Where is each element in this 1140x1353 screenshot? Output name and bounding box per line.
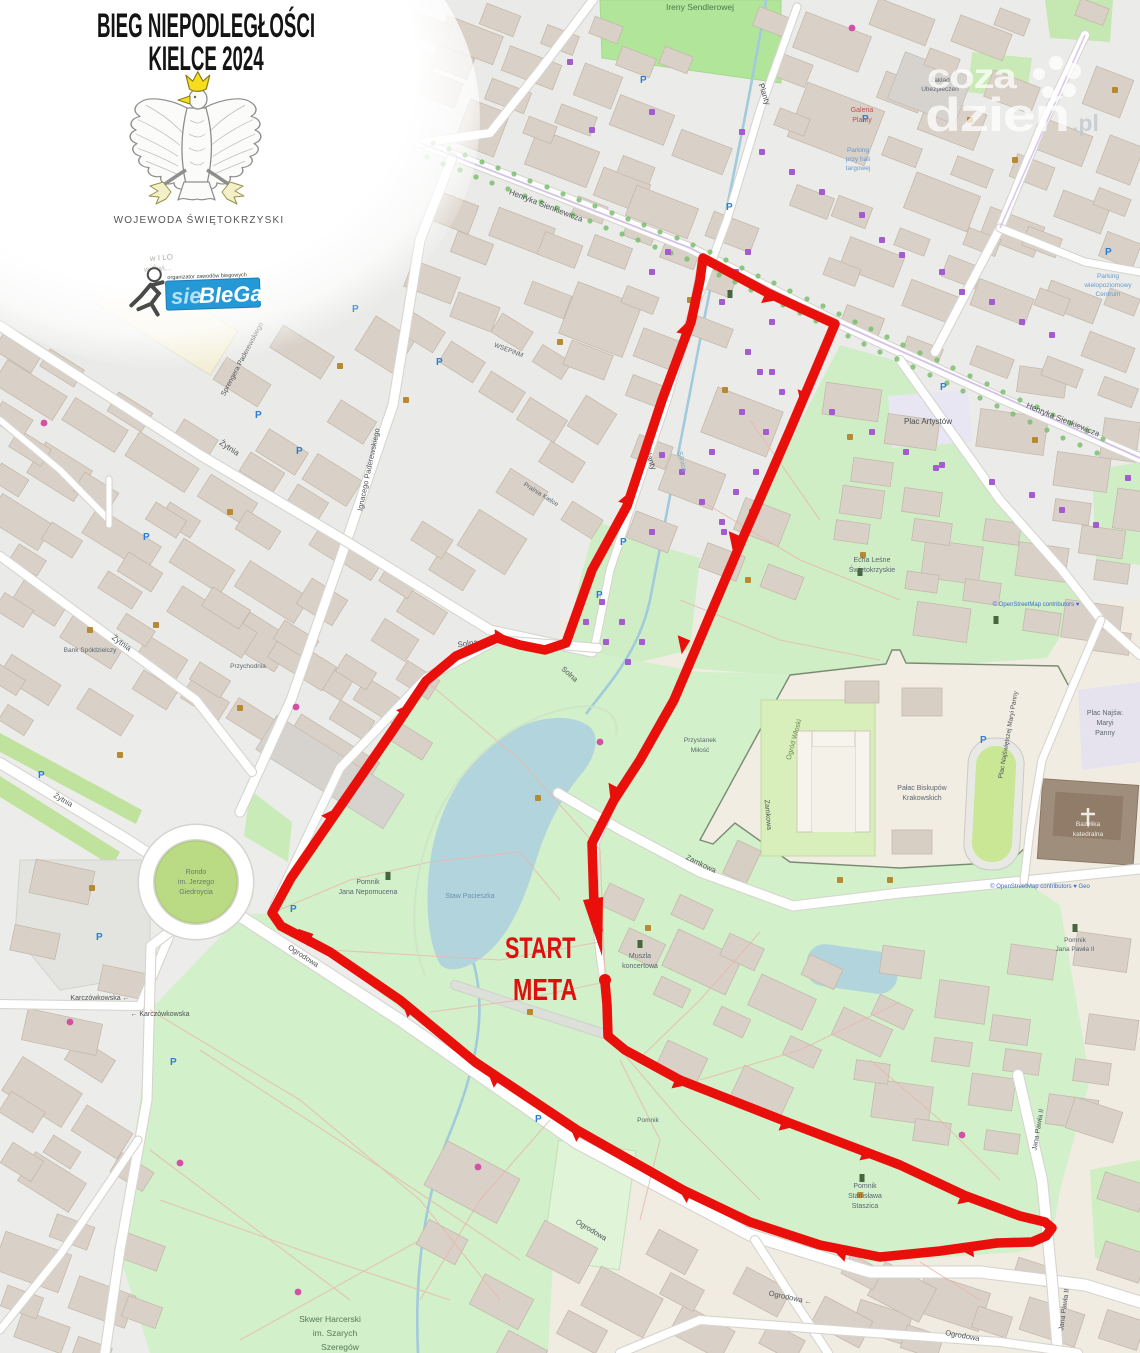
svg-text:katedralna: katedralna [1073, 831, 1104, 838]
svg-text:Pomnik: Pomnik [637, 1117, 659, 1124]
svg-text:Parking: Parking [847, 147, 869, 154]
svg-text:BIeGa: BIeGa [199, 281, 263, 308]
svg-text:im. Jerzego: im. Jerzego [178, 879, 214, 886]
svg-text:P: P [38, 770, 45, 781]
svg-text:.pl: .pl [1072, 110, 1099, 136]
svg-text:Muszla: Muszla [629, 953, 651, 960]
svg-text:Pomnik: Pomnik [356, 879, 380, 886]
svg-text:Giedroycia: Giedroycia [179, 889, 213, 896]
svg-text:Przystanek: Przystanek [684, 737, 717, 744]
svg-text:P: P [596, 590, 603, 601]
svg-text:P: P [1105, 247, 1112, 258]
svg-text:Pomnik: Pomnik [1064, 937, 1086, 944]
svg-text:P: P [980, 735, 987, 746]
svg-text:← Karczówkowska: ← Karczówkowska [130, 1011, 189, 1018]
svg-text:w I LO: w I LO [149, 252, 174, 263]
svg-text:P: P [296, 446, 303, 457]
svg-text:Bazylika: Bazylika [1076, 821, 1101, 828]
svg-text:Centrum: Centrum [1096, 291, 1121, 298]
svg-text:WOJEWODA ŚWIĘTOKRZYSKI: WOJEWODA ŚWIĘTOKRZYSKI [114, 213, 285, 226]
svg-text:Stanisława: Stanisława [848, 1193, 882, 1200]
svg-text:Plac Najśw.: Plac Najśw. [1087, 710, 1123, 717]
svg-text:P: P [143, 532, 150, 543]
svg-text:© OpenStreetMap contributors ♥: © OpenStreetMap contributors ♥ [993, 601, 1080, 608]
svg-text:START: START [505, 930, 575, 964]
svg-text:P: P [726, 202, 733, 213]
svg-text:Świętokrzyskie: Świętokrzyskie [849, 565, 895, 574]
svg-text:Rondo: Rondo [186, 869, 207, 876]
svg-text:P: P [640, 75, 647, 86]
svg-text:Echa Leśne: Echa Leśne [854, 557, 891, 564]
svg-text:Panny: Panny [1095, 730, 1115, 737]
svg-text:Przychodnia: Przychodnia [230, 663, 266, 670]
svg-text:Plac Artystów: Plac Artystów [904, 417, 952, 426]
svg-text:Pomnik: Pomnik [853, 1183, 877, 1190]
svg-text:© OpenStreetMap contributors ♥: © OpenStreetMap contributors ♥ Geo [990, 883, 1090, 890]
svg-text:P: P [255, 410, 262, 421]
svg-text:Karczówkowska ←: Karczówkowska ← [70, 995, 129, 1002]
svg-text:P: P [535, 1114, 542, 1125]
svg-text:koncertowa: koncertowa [622, 963, 658, 970]
svg-text:targowej: targowej [846, 165, 871, 172]
svg-text:Staw Pocieszka: Staw Pocieszka [445, 893, 495, 900]
svg-text:Miłość: Miłość [691, 747, 710, 754]
svg-text:META: META [513, 972, 577, 1007]
svg-text:Ireny Sendlerowej: Ireny Sendlerowej [666, 2, 734, 12]
svg-text:Staszica: Staszica [852, 1203, 879, 1210]
svg-text:Galeria: Galeria [851, 107, 874, 114]
svg-text:Planty: Planty [852, 117, 872, 124]
svg-text:Pałac Biskupów: Pałac Biskupów [897, 785, 947, 792]
svg-text:przy hali: przy hali [846, 156, 870, 163]
svg-text:Krakowskich: Krakowskich [902, 795, 941, 802]
svg-text:Skwer Harcerski: Skwer Harcerski [299, 1314, 361, 1324]
svg-text:Bank Spółdzielczy: Bank Spółdzielczy [64, 647, 117, 654]
svg-text:KIELCE 2024: KIELCE 2024 [148, 39, 264, 77]
svg-text:sie: sie [171, 283, 202, 309]
svg-text:P: P [170, 1057, 177, 1068]
svg-text:P: P [620, 537, 627, 548]
svg-text:P: P [96, 932, 103, 943]
svg-text:im. Szarych: im. Szarych [313, 1328, 358, 1338]
svg-text:wielopoziomowy: wielopoziomowy [1083, 282, 1132, 289]
svg-text:Szeregów: Szeregów [321, 1342, 360, 1352]
svg-text:Maryi: Maryi [1096, 720, 1114, 727]
svg-text:Parking: Parking [1097, 273, 1119, 280]
svg-text:Jana Pawła II: Jana Pawła II [1055, 946, 1094, 953]
svg-text:P: P [436, 357, 443, 368]
svg-text:Jana Nepomucena: Jana Nepomucena [339, 889, 398, 896]
svg-text:P: P [940, 382, 947, 393]
svg-text:P: P [290, 904, 297, 915]
